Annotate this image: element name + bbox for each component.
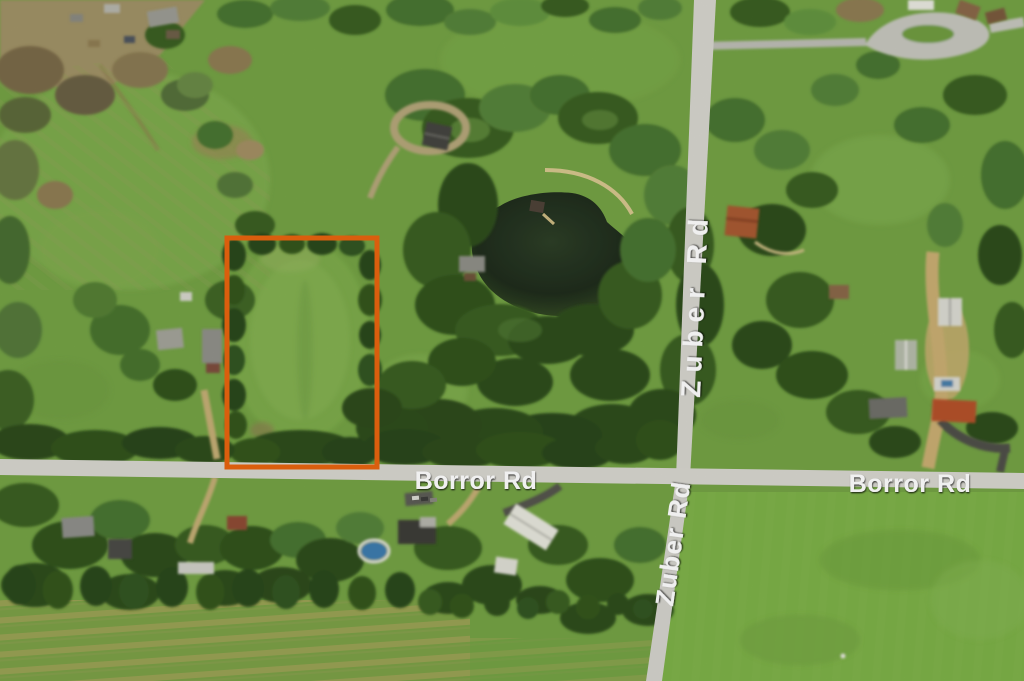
imagery-grain-overlay — [0, 0, 1024, 681]
map-canvas: Borror Rd Borror Rd Zuber Rd Zuber Rd — [0, 0, 1024, 681]
aerial-map-view[interactable]: Borror Rd Borror Rd Zuber Rd Zuber Rd — [0, 0, 1024, 681]
